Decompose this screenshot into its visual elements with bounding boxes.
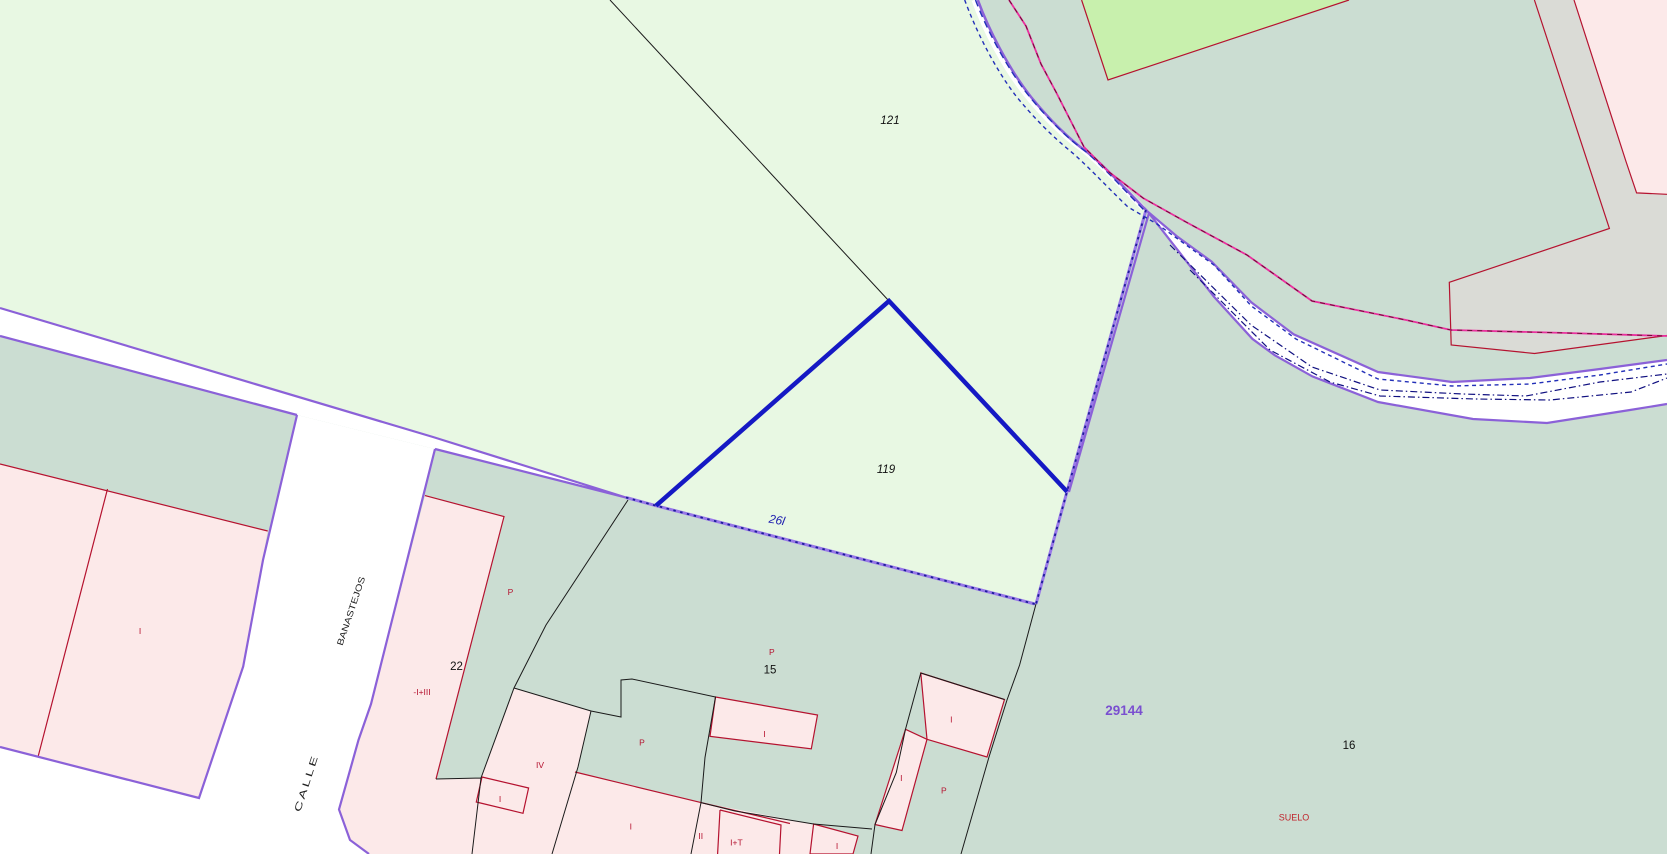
svg-text:P: P [639, 738, 645, 748]
svg-text:P: P [941, 786, 947, 796]
svg-text:I: I [900, 773, 902, 783]
svg-text:P: P [508, 587, 514, 597]
svg-text:26l: 26l [767, 512, 787, 529]
svg-text:SUELO: SUELO [1279, 813, 1310, 823]
svg-text:I: I [950, 715, 952, 725]
svg-text:P: P [769, 647, 775, 657]
svg-text:16: 16 [1343, 740, 1356, 752]
svg-text:29144: 29144 [1105, 703, 1143, 718]
svg-text:I: I [139, 626, 141, 636]
svg-text:22: 22 [450, 661, 463, 673]
svg-text:I: I [836, 841, 838, 851]
svg-text:-I+III: -I+III [413, 687, 430, 697]
svg-text:15: 15 [764, 665, 777, 677]
svg-text:I: I [763, 729, 765, 739]
svg-text:II: II [698, 831, 703, 841]
svg-text:I+T: I+T [730, 838, 743, 848]
svg-text:I: I [630, 822, 632, 832]
svg-text:IV: IV [536, 760, 544, 770]
svg-text:119: 119 [877, 464, 896, 476]
svg-text:I: I [499, 794, 501, 804]
svg-text:121: 121 [880, 115, 899, 127]
